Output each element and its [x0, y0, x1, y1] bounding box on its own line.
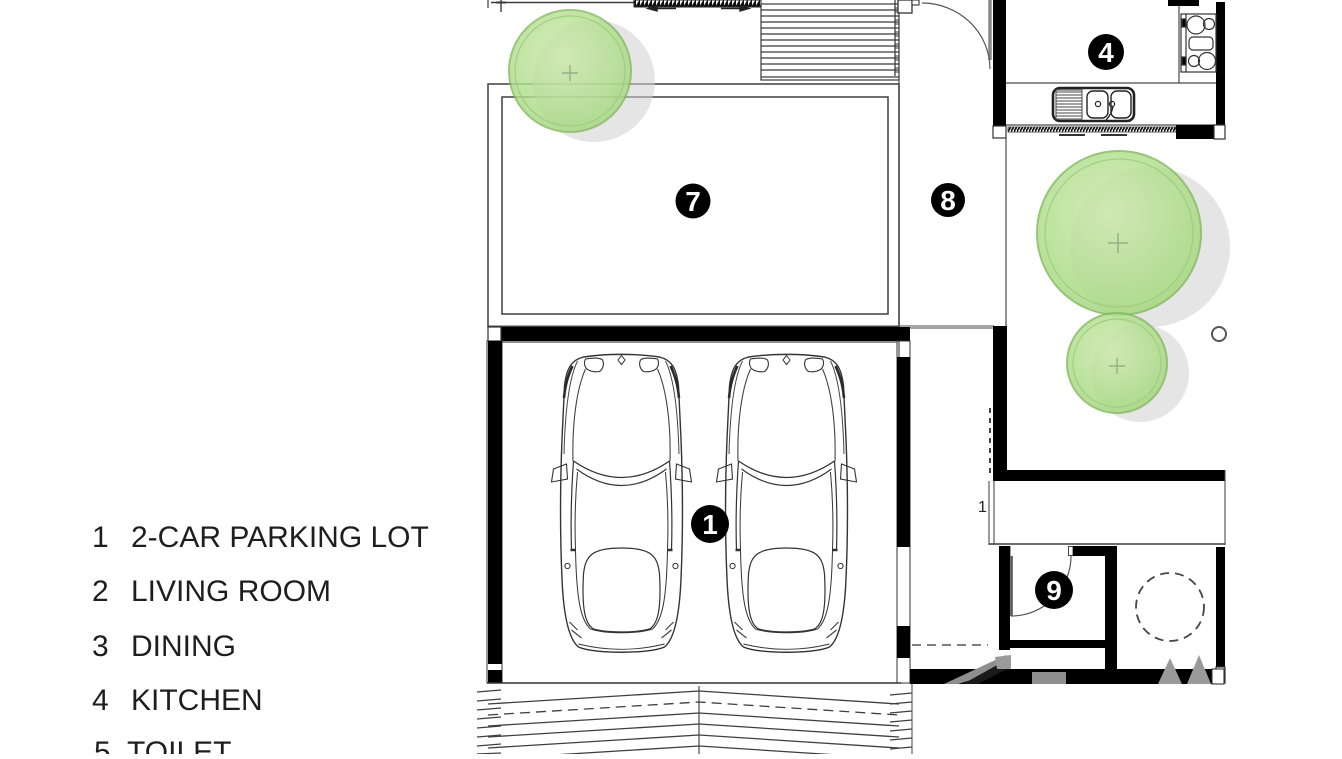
svg-text:KITCHEN: KITCHEN [131, 684, 263, 717]
svg-text:2: 2 [92, 575, 109, 608]
svg-text:9: 9 [1046, 575, 1062, 606]
svg-text:1: 1 [92, 521, 109, 554]
svg-text:TOILET: TOILET [127, 736, 231, 754]
svg-text:1: 1 [702, 509, 718, 540]
svg-text:3: 3 [92, 630, 109, 663]
svg-text:5: 5 [94, 736, 111, 754]
svg-text:4: 4 [92, 684, 109, 717]
svg-text:2-CAR PARKING LOT: 2-CAR PARKING LOT [131, 521, 429, 554]
svg-text:8: 8 [940, 185, 956, 216]
svg-text:LIVING ROOM: LIVING ROOM [131, 575, 331, 608]
svg-text:7: 7 [685, 186, 701, 217]
svg-text:DINING: DINING [131, 630, 236, 663]
svg-text:4: 4 [1098, 37, 1114, 68]
svg-text:1: 1 [978, 499, 987, 516]
